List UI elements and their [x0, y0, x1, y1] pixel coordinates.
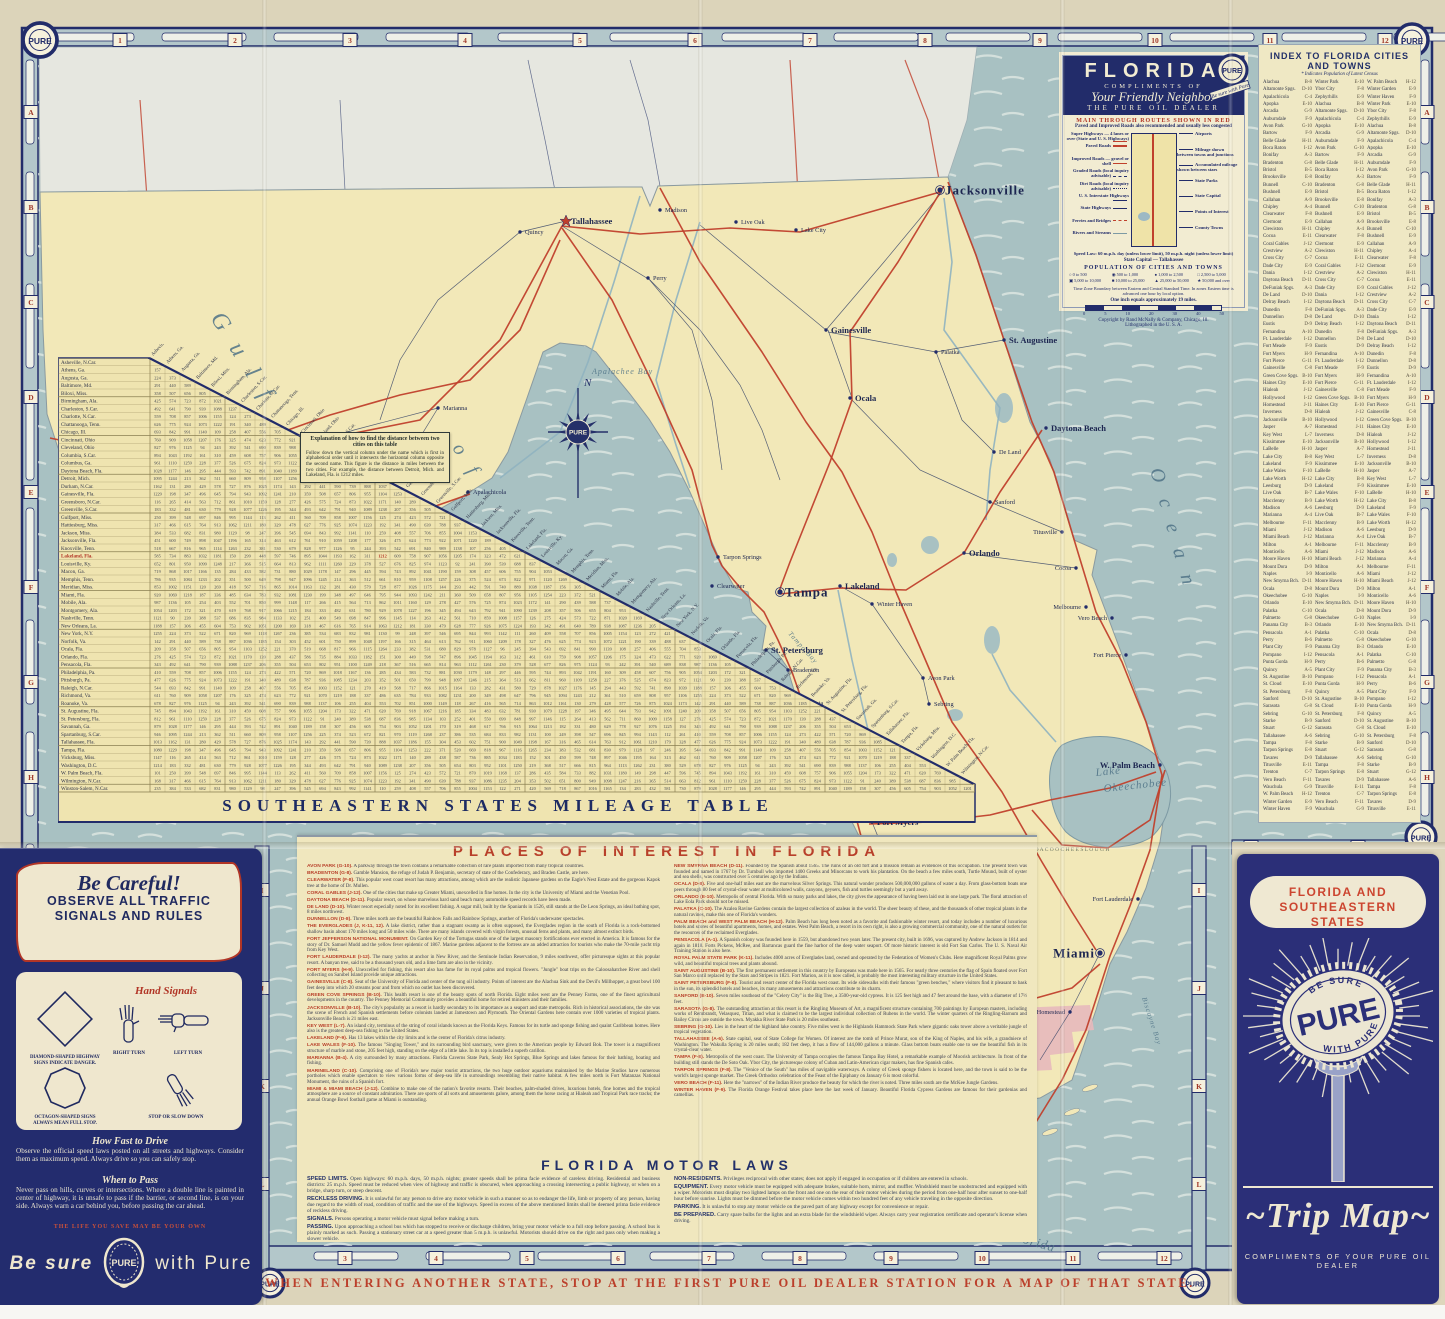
svg-text:1209: 1209 [498, 639, 507, 644]
svg-text:593: 593 [244, 724, 250, 729]
svg-text:459: 459 [229, 453, 235, 458]
svg-text:158: 158 [859, 786, 865, 791]
index-entry: Avon ParkG-10 [1315, 145, 1364, 152]
index-entry: InvernessD-8 [1315, 432, 1364, 439]
svg-text:1032: 1032 [198, 554, 207, 559]
svg-text:640: 640 [574, 623, 580, 628]
svg-text:676: 676 [394, 561, 401, 566]
svg-text:596: 596 [679, 771, 686, 776]
index-entry: Daytona BeachD-11 [1315, 299, 1364, 306]
svg-text:300: 300 [394, 654, 400, 659]
svg-text:1023: 1023 [513, 600, 522, 605]
svg-text:1100: 1100 [348, 662, 356, 667]
svg-text:724: 724 [349, 755, 356, 760]
svg-text:543: 543 [544, 647, 550, 652]
svg-text:626: 626 [709, 740, 716, 745]
svg-text:1243: 1243 [573, 693, 582, 698]
svg-text:600: 600 [169, 538, 175, 543]
index-entry: InvernessD-8 [1263, 409, 1312, 416]
svg-text:1016: 1016 [588, 786, 597, 791]
index-entry: W. Palm BeachH-12 [1367, 79, 1416, 86]
index-entry: OrlandoE-10 [1315, 622, 1364, 629]
svg-text:1077: 1077 [243, 507, 252, 512]
index-entry: BushnellE-9 [1263, 189, 1312, 196]
svg-text:1262: 1262 [633, 763, 642, 768]
svg-text:745: 745 [694, 771, 700, 776]
svg-text:739: 739 [349, 484, 355, 489]
svg-text:693: 693 [154, 430, 160, 435]
svg-text:265: 265 [169, 499, 175, 504]
index-entry: Haines CityE-10 [1263, 380, 1312, 387]
svg-text:136: 136 [364, 670, 371, 675]
svg-text:696: 696 [604, 732, 611, 737]
index-column: W. Palm BeachH-12Winter GardenE-9Winter … [1367, 79, 1416, 815]
population-title: POPULATION OF CITIES AND TOWNS [1063, 265, 1244, 271]
svg-text:539: 539 [499, 561, 505, 566]
svg-text:492: 492 [169, 662, 175, 667]
index-entry: Mount DoraD-9 [1367, 608, 1416, 615]
text-entry: THE EVERGLADES (J, K-11, 12). A lake dis… [307, 924, 660, 935]
svg-text:455: 455 [199, 623, 205, 628]
svg-text:831: 831 [199, 530, 205, 535]
index-entry: MacclennyB-9 [1315, 520, 1364, 527]
index-entry: Moore HavenH-10 [1367, 600, 1416, 607]
svg-text:922: 922 [439, 538, 445, 543]
svg-text:386: 386 [454, 732, 461, 737]
legend-dealer-line: THE PURE OIL DEALER [1065, 104, 1242, 112]
svg-text:721: 721 [454, 771, 460, 776]
svg-text:882: 882 [589, 771, 595, 776]
index-entry: Winter ParkE-10 [1315, 79, 1364, 86]
index-entry: FernandinaA-10 [1315, 351, 1364, 358]
svg-text:154: 154 [274, 639, 281, 644]
svg-text:932: 932 [274, 592, 280, 597]
index-entry: Key WestL-7 [1367, 476, 1416, 483]
svg-text:657: 657 [349, 747, 356, 752]
city-label: Fort Lauderdale [1093, 896, 1134, 903]
svg-text:175: 175 [619, 654, 625, 659]
bottom-banner: WHEN ENTERING ANOTHER STATE, STOP AT THE… [230, 1276, 1230, 1291]
border-coordinate-box: 7 [803, 34, 817, 47]
svg-text:130: 130 [574, 701, 580, 706]
svg-text:480: 480 [589, 724, 595, 729]
svg-text:193: 193 [529, 623, 535, 628]
routes-subnote: Paved and Improved Roads also recommende… [1063, 124, 1244, 129]
svg-text:587: 587 [454, 755, 461, 760]
svg-text:1122: 1122 [843, 778, 851, 783]
svg-text:1198: 1198 [528, 740, 536, 745]
svg-text:957: 957 [664, 693, 671, 698]
svg-text:411: 411 [289, 515, 295, 520]
svg-text:273: 273 [244, 414, 250, 419]
svg-text:430: 430 [349, 585, 355, 590]
index-entry: Fort MeadeF-9 [1315, 365, 1364, 372]
index-entry: BristolB-5 [1367, 211, 1416, 218]
svg-text:343: 343 [694, 724, 700, 729]
svg-text:757: 757 [259, 453, 266, 458]
svg-text:924: 924 [199, 678, 206, 683]
index-entry: Panama CityB-3 [1367, 667, 1416, 674]
svg-text:977: 977 [319, 546, 326, 551]
svg-text:144: 144 [439, 585, 446, 590]
svg-text:725: 725 [484, 600, 490, 605]
svg-text:Baltimore, Md.: Baltimore, Md. [196, 356, 220, 381]
index-entry: TitusvilleE-11 [1315, 784, 1364, 791]
svg-text:PURE: PURE [28, 36, 52, 46]
svg-text:184: 184 [304, 608, 311, 613]
index-entry: DunnellonD-8 [1367, 358, 1416, 365]
svg-text:1036: 1036 [243, 639, 252, 644]
svg-text:1153: 1153 [483, 786, 491, 791]
svg-text:673: 673 [499, 577, 505, 582]
svg-text:918: 918 [409, 709, 415, 714]
svg-text:1047: 1047 [213, 538, 222, 543]
mileage-explanation-title: Explanation of how to find the distance … [306, 436, 444, 449]
svg-text:771: 771 [679, 654, 685, 659]
text-entry: DUNNELLON (D-8). Three miles north are t… [307, 917, 660, 923]
svg-text:453: 453 [454, 740, 460, 745]
svg-text:881: 881 [439, 670, 445, 675]
svg-text:159: 159 [454, 569, 460, 574]
svg-text:772: 772 [829, 755, 835, 760]
svg-text:871: 871 [604, 616, 610, 621]
border-coordinate-box: B [1420, 201, 1434, 214]
svg-text:1073: 1073 [198, 422, 207, 427]
svg-text:727: 727 [229, 484, 236, 489]
text-entry: FORT LAUDERDALE (I-12). The many yachts … [307, 955, 660, 966]
svg-text:1233: 1233 [198, 577, 207, 582]
svg-text:937: 937 [454, 523, 461, 528]
index-entry: Belle GladeH-11 [1367, 182, 1416, 189]
motor-laws-right-column: NON-RESIDENTS. Privileges reciprocal wit… [674, 1176, 1027, 1242]
svg-text:1180: 1180 [618, 771, 626, 776]
svg-text:748: 748 [589, 755, 595, 760]
svg-text:1216: 1216 [438, 709, 447, 714]
svg-text:Augusta, Ga.: Augusta, Ga. [181, 351, 202, 373]
svg-text:PURE: PURE [1222, 68, 1242, 75]
svg-text:477: 477 [694, 740, 701, 745]
svg-text:221: 221 [274, 647, 280, 652]
svg-text:1218: 1218 [183, 592, 192, 597]
svg-text:1260: 1260 [333, 561, 342, 566]
places-of-interest-panel: PLACES OF INTEREST IN FLORIDA AVON PARK … [297, 835, 1037, 1242]
svg-text:1062: 1062 [243, 778, 252, 783]
svg-text:787: 787 [304, 678, 311, 683]
svg-text:959: 959 [409, 577, 415, 582]
svg-text:173: 173 [874, 771, 880, 776]
index-entry: CrestviewA-2 [1315, 270, 1364, 277]
svg-text:1042: 1042 [573, 670, 582, 675]
svg-text:993: 993 [484, 631, 490, 636]
svg-text:142: 142 [694, 701, 700, 706]
svg-text:605: 605 [904, 786, 910, 791]
svg-text:7: 7 [808, 36, 812, 45]
index-entry: LaBelleH-10 [1315, 468, 1364, 475]
svg-text:1239: 1239 [528, 608, 537, 613]
svg-text:Ocala, Fla.: Ocala, Fla. [61, 647, 83, 653]
svg-text:942: 942 [649, 709, 655, 714]
index-entry: Plant CityF-9 [1315, 667, 1364, 674]
svg-text:1081: 1081 [288, 592, 297, 597]
index-entry: CrestviewA-2 [1367, 292, 1416, 299]
svg-text:140: 140 [394, 499, 400, 504]
index-entry: Key WestL-7 [1263, 432, 1312, 439]
svg-text:650: 650 [409, 678, 415, 683]
svg-text:1220: 1220 [468, 538, 477, 543]
svg-text:990: 990 [589, 647, 595, 652]
svg-text:191: 191 [784, 740, 790, 745]
svg-text:Ocala, Fla.: Ocala, Fla. [706, 625, 724, 644]
svg-text:391: 391 [634, 662, 640, 667]
svg-text:105: 105 [724, 662, 730, 667]
svg-text:1052: 1052 [408, 724, 417, 729]
svg-text:679: 679 [289, 546, 295, 551]
svg-text:1064: 1064 [528, 724, 537, 729]
svg-text:590: 590 [334, 484, 340, 489]
svg-text:1152: 1152 [873, 747, 881, 752]
svg-text:443: 443 [619, 685, 625, 690]
svg-text:707: 707 [574, 631, 581, 636]
index-entry: Tarpon SpringsE-8 [1263, 747, 1312, 754]
svg-text:378: 378 [364, 561, 370, 566]
svg-text:393: 393 [379, 546, 385, 551]
index-entry: St. PetersburgF-8 [1367, 733, 1416, 740]
svg-text:816: 816 [184, 546, 191, 551]
svg-text:1096: 1096 [303, 577, 312, 582]
svg-text:310: 310 [769, 771, 775, 776]
border-coordinate-box: 1 [113, 34, 127, 47]
svg-text:608: 608 [259, 709, 265, 714]
svg-text:533: 533 [184, 786, 190, 791]
svg-text:1155: 1155 [213, 414, 221, 419]
svg-text:318: 318 [304, 623, 310, 628]
svg-text:163: 163 [499, 654, 505, 659]
index-entry: BunnellC-10 [1367, 226, 1416, 233]
svg-text:578: 578 [229, 740, 235, 745]
svg-text:358: 358 [169, 647, 175, 652]
svg-text:298: 298 [649, 771, 655, 776]
svg-text:149: 149 [634, 771, 640, 776]
svg-text:339: 339 [649, 639, 655, 644]
scale-tick: 0 [1083, 311, 1085, 316]
slogan-left: Be sure [10, 1253, 94, 1274]
svg-text:626: 626 [154, 422, 161, 427]
svg-text:W. Palm Beach, Fla.: W. Palm Beach, Fla. [61, 771, 103, 777]
svg-text:Greensboro, N.Car.: Greensboro, N.Car. [61, 499, 101, 505]
svg-text:853: 853 [694, 647, 700, 652]
scale-tick: 20 [1149, 311, 1154, 316]
svg-text:1059: 1059 [333, 538, 342, 543]
svg-text:750: 750 [334, 639, 340, 644]
svg-text:893: 893 [559, 670, 565, 675]
svg-text:1008: 1008 [498, 616, 507, 621]
svg-text:522: 522 [199, 631, 205, 636]
index-entry: PerryB-6 [1263, 637, 1312, 644]
index-entry: DeFuniak Spgs.A-3 [1315, 307, 1364, 314]
svg-text:540: 540 [649, 662, 655, 667]
svg-text:1136: 1136 [168, 600, 177, 605]
text-entry: FORT MYERS (H-9). Unexcelled for fishing… [307, 968, 660, 979]
svg-text:314: 314 [259, 538, 266, 543]
svg-text:150: 150 [229, 554, 235, 559]
svg-text:810: 810 [394, 577, 400, 582]
svg-text:690: 690 [259, 445, 265, 450]
index-entry: CallahanA-9 [1263, 197, 1312, 204]
index-entry: ApopkaE-10 [1367, 145, 1416, 152]
svg-text:1013: 1013 [153, 740, 162, 745]
svg-text:658: 658 [484, 592, 490, 597]
index-title-2: AND TOWNS [1259, 61, 1420, 71]
border-coordinate-box: K [1192, 1080, 1206, 1093]
svg-text:301: 301 [544, 755, 550, 760]
index-entry: Lake CityB-8 [1367, 498, 1416, 505]
svg-text:1159: 1159 [258, 499, 266, 504]
svg-text:779: 779 [229, 763, 235, 768]
timezone-note: Time Zone Boundary between Eastern and C… [1063, 286, 1244, 296]
svg-text:917: 917 [259, 608, 266, 613]
svg-text:776: 776 [319, 523, 326, 528]
svg-text:424: 424 [559, 616, 566, 621]
svg-text:1095: 1095 [153, 476, 162, 481]
svg-text:224: 224 [709, 693, 716, 698]
index-entry: JacksonvilleB-10 [1263, 417, 1312, 424]
svg-text:1244: 1244 [183, 732, 192, 737]
svg-text:227: 227 [604, 678, 611, 683]
svg-text:847: 847 [364, 616, 371, 621]
svg-text:859: 859 [484, 616, 490, 621]
svg-text:996: 996 [379, 616, 386, 621]
svg-text:884: 884 [334, 654, 341, 659]
svg-text:321: 321 [199, 608, 205, 613]
svg-text:1122: 1122 [288, 461, 296, 466]
svg-text:8: 8 [798, 1254, 802, 1263]
svg-text:678: 678 [154, 701, 160, 706]
svg-text:716: 716 [259, 585, 266, 590]
svg-text:326: 326 [379, 538, 386, 543]
city-label: Gainesville [831, 325, 871, 335]
svg-text:985: 985 [409, 716, 415, 721]
svg-text:395: 395 [679, 747, 685, 752]
svg-text:1215: 1215 [288, 608, 297, 613]
svg-text:280: 280 [184, 484, 190, 489]
index-entry: Avon ParkG-10 [1263, 123, 1312, 130]
svg-text:1012: 1012 [543, 701, 552, 706]
svg-text:808: 808 [649, 693, 655, 698]
index-entry: PalatkaC-10 [1315, 630, 1364, 637]
svg-text:229: 229 [349, 561, 355, 566]
svg-text:891: 891 [814, 786, 820, 791]
when-pass-body: Never pass on hills, curves or intersect… [16, 1186, 244, 1211]
svg-text:842: 842 [169, 430, 175, 435]
svg-text:1153: 1153 [468, 530, 476, 535]
svg-text:1077: 1077 [258, 763, 267, 768]
svg-text:609: 609 [394, 554, 400, 559]
legend-item: Accumulated mileage shown between stars [1177, 162, 1241, 172]
index-entry: AlachuaB-8 [1315, 101, 1364, 108]
svg-text:912: 912 [619, 740, 625, 745]
svg-text:Mobile, Ala.: Mobile, Ala. [61, 600, 87, 606]
svg-text:906: 906 [829, 771, 836, 776]
index-entry: AuburndaleF-9 [1315, 138, 1364, 145]
svg-text:548: 548 [184, 515, 190, 520]
svg-text:170: 170 [439, 724, 445, 729]
svg-text:1252: 1252 [258, 647, 267, 652]
svg-text:793: 793 [634, 709, 640, 714]
svg-text:962: 962 [304, 561, 310, 566]
svg-text:1256: 1256 [288, 476, 297, 481]
svg-text:781: 781 [514, 709, 520, 714]
mileage-table-grid: 1572243732914405893585076568054255747238… [58, 344, 1000, 828]
index-entry: TampaF-8 [1263, 740, 1312, 747]
svg-text:704: 704 [679, 647, 686, 652]
svg-text:678: 678 [694, 763, 700, 768]
index-entry: MariannaA-4 [1263, 512, 1312, 519]
svg-text:1014: 1014 [288, 585, 297, 590]
svg-text:145: 145 [589, 685, 595, 690]
svg-text:667: 667 [169, 546, 176, 551]
svg-text:965: 965 [199, 546, 205, 551]
svg-text:602: 602 [469, 740, 475, 745]
svg-text:1024: 1024 [663, 701, 672, 706]
svg-text:137: 137 [514, 771, 521, 776]
svg-text:743: 743 [394, 569, 400, 574]
svg-text:296: 296 [349, 569, 356, 574]
index-entry: OcalaD-8 [1263, 586, 1312, 593]
index-entry: ChipleyA-4 [1367, 248, 1416, 255]
svg-text:985: 985 [949, 778, 955, 783]
border-coordinate-box: 10 [1148, 34, 1162, 47]
svg-text:361: 361 [604, 693, 610, 698]
svg-text:790: 790 [184, 406, 190, 411]
svg-text:1204: 1204 [858, 771, 867, 776]
svg-text:585: 585 [154, 554, 160, 559]
octagon-sign-icon [45, 1068, 85, 1108]
svg-text:Durham, N.Car.: Durham, N.Car. [61, 484, 94, 490]
svg-text:414: 414 [199, 755, 206, 760]
index-entry: ApalachicolaC-4 [1263, 94, 1312, 101]
svg-text:706: 706 [424, 530, 431, 535]
svg-text:656: 656 [184, 391, 191, 396]
svg-text:407: 407 [259, 685, 266, 690]
svg-text:496: 496 [199, 492, 206, 497]
svg-text:502: 502 [544, 778, 550, 783]
svg-text:744: 744 [544, 670, 551, 675]
svg-text:437: 437 [829, 716, 836, 721]
svg-text:125: 125 [379, 515, 385, 520]
svg-text:431: 431 [499, 685, 505, 690]
svg-text:690: 690 [814, 763, 820, 768]
index-entry: JacksonvilleB-10 [1367, 461, 1416, 468]
index-entry: BristolB-5 [1315, 189, 1364, 196]
svg-text:340: 340 [244, 422, 250, 427]
svg-text:413: 413 [589, 716, 595, 721]
svg-text:576: 576 [469, 600, 476, 605]
index-entry: AuburndaleF-9 [1263, 116, 1312, 123]
index-entry: Haines CityE-10 [1367, 424, 1416, 431]
svg-text:595: 595 [529, 670, 535, 675]
svg-text:846: 846 [229, 771, 236, 776]
index-entry: SebringG-10 [1263, 711, 1312, 718]
svg-text:199: 199 [319, 592, 325, 597]
index-entry: PerryB-6 [1315, 659, 1364, 666]
svg-text:765: 765 [349, 623, 355, 628]
svg-text:599: 599 [574, 755, 580, 760]
svg-text:Louisville, Ky.: Louisville, Ky. [541, 535, 564, 559]
svg-text:738: 738 [754, 701, 760, 706]
svg-text:1259: 1259 [198, 716, 207, 721]
svg-text:240: 240 [874, 778, 880, 783]
svg-text:541: 541 [244, 445, 250, 450]
